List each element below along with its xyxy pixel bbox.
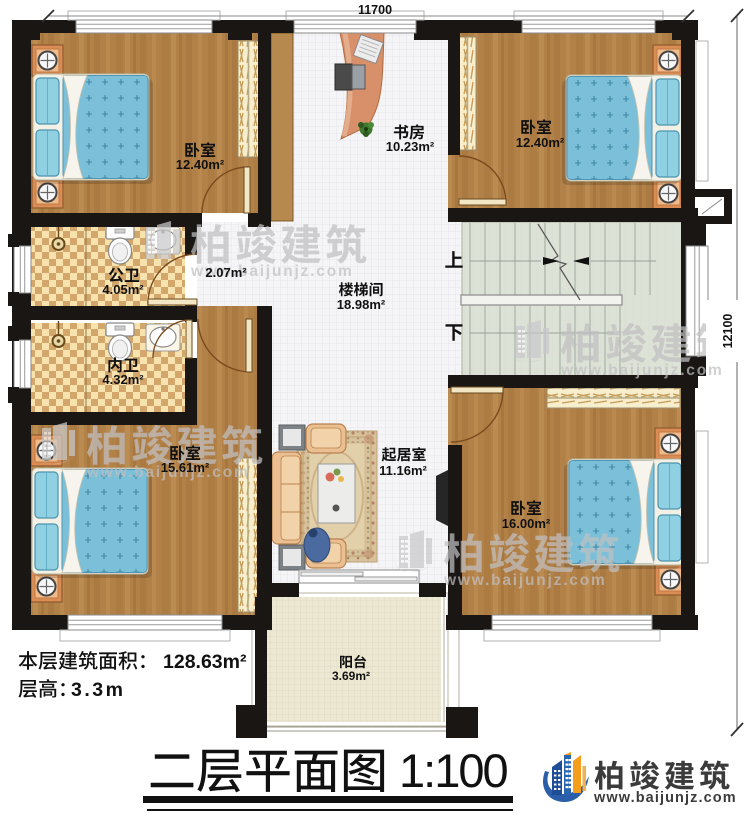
svg-text:11700: 11700 xyxy=(358,3,392,17)
svg-text:2.07m²: 2.07m² xyxy=(205,265,247,280)
svg-text:www.baijunjz.com: www.baijunjz.com xyxy=(593,790,737,806)
svg-text:16.00m²: 16.00m² xyxy=(502,516,551,531)
svg-text:11.16m²: 11.16m² xyxy=(379,463,427,478)
svg-text:12.40m²: 12.40m² xyxy=(516,135,565,150)
svg-text:www.baijunjz.com: www.baijunjz.com xyxy=(560,362,724,379)
svg-text:128.63m²: 128.63m² xyxy=(163,651,247,673)
svg-text:3.3m: 3.3m xyxy=(71,679,125,701)
svg-text:4.32m²: 4.32m² xyxy=(102,372,144,387)
svg-text:18.98m²: 18.98m² xyxy=(337,297,386,312)
svg-text:15.61m²: 15.61m² xyxy=(161,460,210,475)
svg-text:12.40m²: 12.40m² xyxy=(176,157,225,172)
svg-text:10.23m²: 10.23m² xyxy=(386,139,435,154)
svg-text:4.05m²: 4.05m² xyxy=(102,282,144,297)
svg-text:12100: 12100 xyxy=(721,314,735,349)
svg-text:1:100: 1:100 xyxy=(399,744,507,797)
svg-text:3.69m²: 3.69m² xyxy=(332,669,370,683)
svg-text:www.baijunjz.com: www.baijunjz.com xyxy=(443,572,607,589)
